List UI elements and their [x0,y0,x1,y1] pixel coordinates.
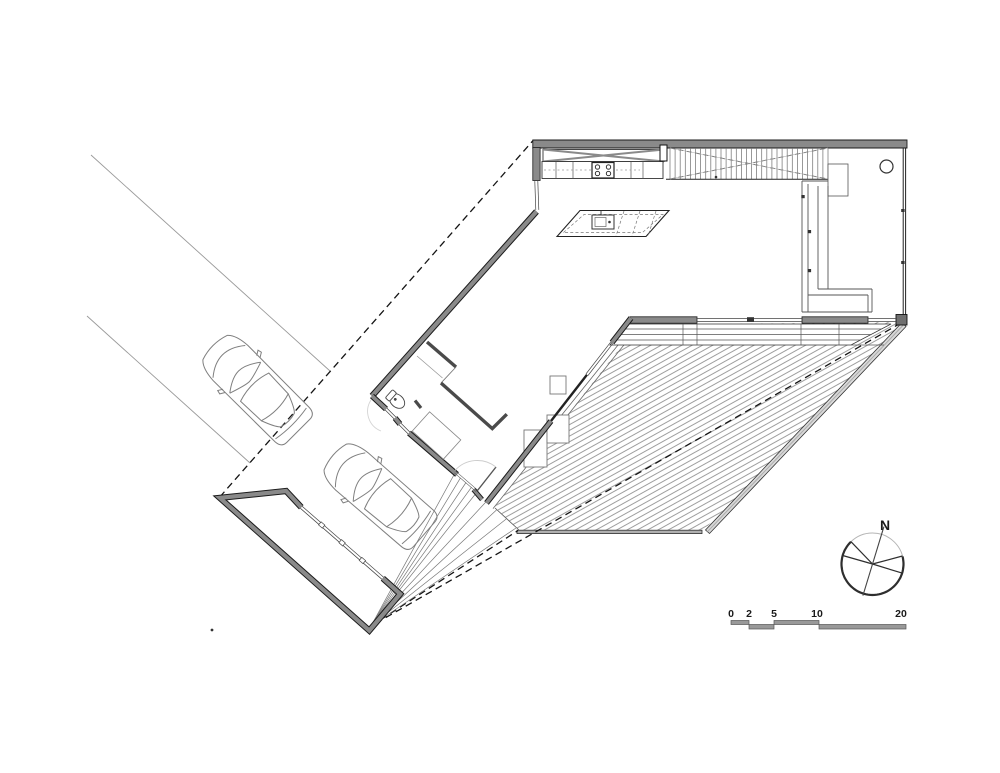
svg-text:20: 20 [895,608,907,620]
svg-text:5: 5 [771,608,777,620]
svg-text:0: 0 [728,608,734,620]
svg-text:10: 10 [811,608,823,620]
svg-text:N: N [880,517,890,533]
svg-text:2: 2 [746,608,752,620]
